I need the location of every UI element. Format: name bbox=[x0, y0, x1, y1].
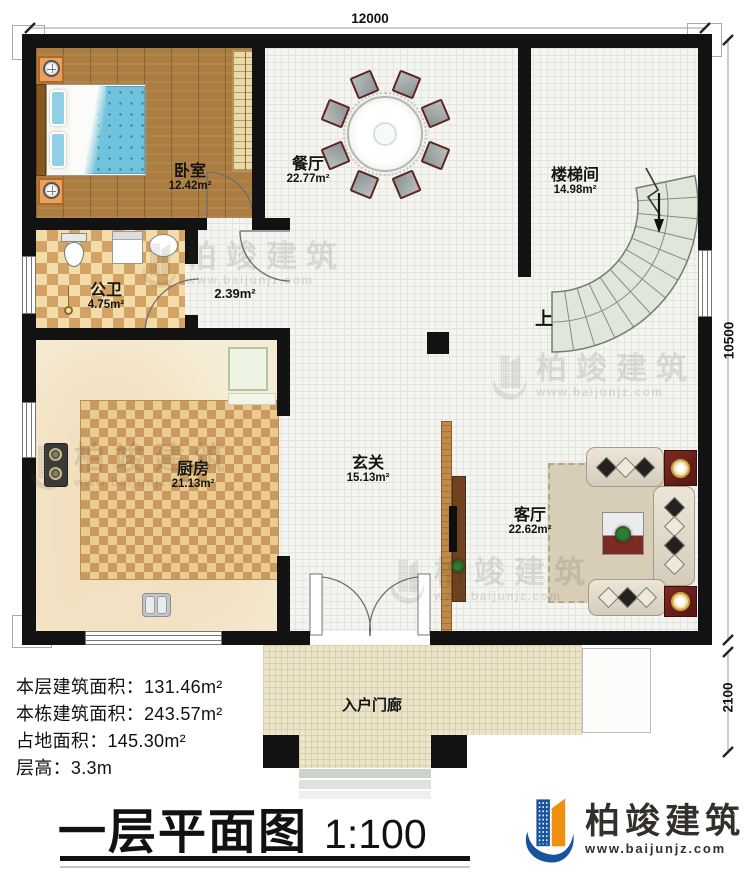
info-label: 本层建筑面积： bbox=[16, 677, 144, 697]
area-info-block: 本层建筑面积：131.46m² 本栋建筑面积：243.57m² 占地面积：145… bbox=[16, 674, 223, 782]
bed-blanket bbox=[70, 86, 106, 174]
info-line: 本层建筑面积：131.46m² bbox=[16, 674, 223, 701]
title-underline-thin bbox=[60, 866, 470, 868]
kitchen-basin bbox=[145, 596, 155, 614]
bedroom-name: 卧室 bbox=[169, 163, 212, 180]
wall-kitchen-right bbox=[277, 328, 290, 416]
washing-machine-icon bbox=[112, 231, 143, 264]
room-label-foyer: 玄关 15.13m² bbox=[347, 455, 390, 485]
lamp-icon bbox=[671, 459, 690, 478]
info-label: 层高： bbox=[16, 758, 71, 778]
stairwell-name: 楼梯间 bbox=[551, 167, 599, 184]
lamp-icon bbox=[43, 182, 60, 199]
bed-pillow bbox=[50, 90, 66, 126]
window bbox=[85, 631, 222, 645]
porch-step bbox=[299, 769, 431, 778]
room-label-closet: 2.39m² bbox=[214, 287, 255, 301]
bed-pillow bbox=[50, 132, 66, 168]
plant-icon bbox=[452, 560, 464, 572]
brand-logo: 柏竣建筑 www.baijunjz.com bbox=[522, 794, 745, 866]
room-label-kitchen: 厨房 21.13m² bbox=[172, 461, 215, 491]
porch-side-pad bbox=[582, 648, 651, 733]
pillow bbox=[663, 554, 684, 575]
drain-cord bbox=[68, 286, 69, 306]
dining-table-center bbox=[373, 122, 397, 146]
floor-plan-canvas: 卧室 12.42m² 餐厅 22.77m² 楼梯间 14.98m² 公卫 4.7… bbox=[0, 0, 750, 879]
info-line: 占地面积：145.30m² bbox=[16, 728, 223, 755]
window bbox=[698, 250, 712, 317]
dim-top: 12000 bbox=[330, 11, 410, 26]
pillow bbox=[635, 587, 656, 608]
sofa bbox=[588, 579, 666, 616]
info-value: 3.3m bbox=[71, 758, 112, 778]
wall-bath-right bbox=[185, 230, 198, 264]
brand-url: www.baijunjz.com bbox=[585, 841, 745, 856]
brand-logo-icon bbox=[522, 794, 576, 866]
window bbox=[22, 256, 36, 314]
dim-right-value: 10500 bbox=[722, 322, 737, 360]
info-label: 本栋建筑面积： bbox=[16, 704, 144, 724]
lamp-icon bbox=[671, 592, 690, 611]
dining-area: 22.77m² bbox=[287, 173, 330, 185]
drawing-title: 一层平面图1:100 bbox=[58, 792, 427, 862]
wall-right bbox=[698, 34, 712, 645]
kitchen-area: 21.13m² bbox=[172, 478, 215, 490]
porch-name: 入户门廊 bbox=[342, 698, 402, 714]
drawing-title-text: 一层平面图 bbox=[58, 806, 308, 859]
room-label-bathroom: 公卫 4.75m² bbox=[88, 282, 124, 312]
foyer-area: 15.13m² bbox=[347, 472, 390, 484]
foyer-name: 玄关 bbox=[347, 455, 390, 472]
pillow bbox=[633, 456, 654, 477]
room-label-porch: 入户门廊 bbox=[342, 698, 402, 714]
kitchen-counter bbox=[228, 393, 276, 405]
bed-headboard bbox=[36, 84, 46, 176]
kitchen-name: 厨房 bbox=[172, 461, 215, 478]
dim-right: 10500 bbox=[722, 312, 737, 370]
living-area: 22.62m² bbox=[509, 524, 552, 536]
dim-porch: 2100 bbox=[721, 675, 736, 721]
wall-closet-top bbox=[252, 218, 290, 230]
porch-column bbox=[263, 735, 299, 768]
wall-bottom bbox=[430, 631, 712, 645]
wall-bedroom-right bbox=[252, 48, 265, 230]
bedroom-area: 12.42m² bbox=[169, 180, 212, 192]
floor-drain-icon bbox=[64, 306, 73, 315]
lamp-icon bbox=[43, 60, 60, 77]
dim-top-value: 12000 bbox=[351, 11, 389, 26]
stairwell-area: 14.98m² bbox=[551, 184, 599, 196]
info-line: 层高：3.3m bbox=[16, 755, 223, 782]
closet-area: 2.39m² bbox=[214, 287, 255, 301]
title-underline bbox=[60, 856, 470, 861]
info-label: 占地面积： bbox=[16, 731, 108, 751]
room-label-stairwell: 楼梯间 14.98m² bbox=[551, 167, 599, 197]
sofa bbox=[586, 447, 664, 487]
kitchen-basin bbox=[157, 596, 167, 614]
drawing-scale: 1:100 bbox=[324, 811, 427, 857]
room-label-living: 客厅 22.62m² bbox=[509, 507, 552, 537]
stairs-up-label: 上 bbox=[535, 305, 553, 331]
room-label-dining: 餐厅 22.77m² bbox=[287, 156, 330, 186]
burner-icon bbox=[49, 467, 62, 480]
pillow bbox=[616, 587, 637, 608]
info-line: 本栋建筑面积：243.57m² bbox=[16, 701, 223, 728]
info-value: 243.57m² bbox=[144, 704, 222, 724]
wall-stairwell bbox=[518, 34, 531, 277]
dining-name: 餐厅 bbox=[287, 156, 330, 173]
porch-floor bbox=[263, 645, 582, 735]
info-value: 145.30m² bbox=[108, 731, 186, 751]
wall-kitchen-right bbox=[277, 556, 290, 645]
bathroom-area: 4.75m² bbox=[88, 299, 124, 311]
sofa bbox=[653, 486, 695, 586]
sink-icon bbox=[149, 234, 178, 257]
pillow bbox=[597, 587, 618, 608]
window bbox=[22, 402, 36, 458]
side-table bbox=[664, 586, 697, 617]
porch-column bbox=[431, 735, 467, 768]
plant-icon bbox=[615, 526, 631, 542]
column bbox=[427, 332, 449, 354]
room-label-bedroom: 卧室 12.42m² bbox=[169, 163, 212, 193]
wall-bath-bottom bbox=[22, 328, 290, 340]
dim-porch-value: 2100 bbox=[721, 682, 736, 712]
living-name: 客厅 bbox=[509, 507, 552, 524]
tv-icon bbox=[449, 506, 457, 552]
bathroom-name: 公卫 bbox=[88, 282, 124, 299]
side-table bbox=[664, 450, 697, 486]
brand-name: 柏竣建筑 bbox=[585, 804, 745, 841]
info-value: 131.46m² bbox=[144, 677, 222, 697]
toilet-icon bbox=[61, 233, 87, 242]
burner-icon bbox=[49, 448, 62, 461]
coffee-table bbox=[602, 512, 644, 555]
porch-step bbox=[299, 780, 431, 789]
fridge-icon bbox=[228, 347, 268, 391]
wall-top bbox=[22, 34, 712, 48]
wall-bedroom-bottom bbox=[22, 218, 207, 230]
